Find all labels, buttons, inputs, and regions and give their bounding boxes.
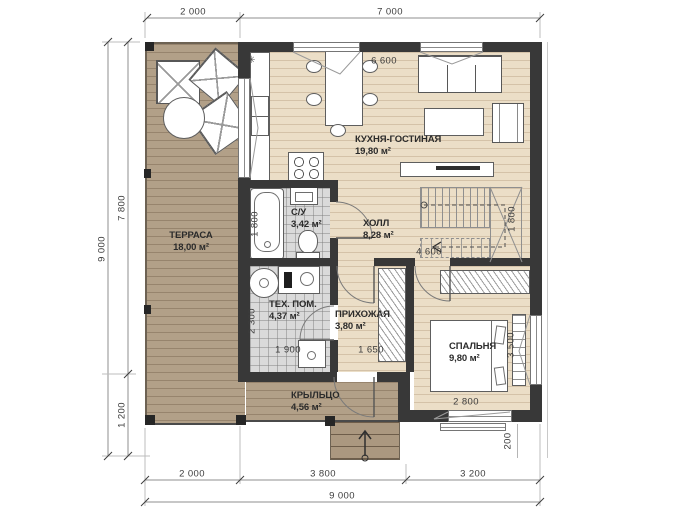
dim-kitchen-width: 6 600 <box>371 56 397 67</box>
room-name: ПРИХОЖАЯ <box>335 309 390 321</box>
room-name: КУХНЯ-ГОСТИНАЯ <box>355 134 441 146</box>
tech-equipment-dial <box>307 351 316 360</box>
dim-tech-width: 1 900 <box>275 345 301 356</box>
wall-hall-bottom-c <box>450 258 542 266</box>
floor-plan: ✳ <box>0 0 693 520</box>
tech-sink <box>300 272 314 286</box>
wall-top <box>238 42 542 52</box>
dim-hallway-width: 1 650 <box>358 345 384 356</box>
room-label-bedroom: СПАЛЬНЯ 9,80 м² <box>449 341 496 365</box>
dim-top-terrace: 2 000 <box>180 7 206 18</box>
stove <box>288 152 324 182</box>
dining-chair <box>362 93 378 106</box>
dining-chair <box>306 93 322 106</box>
room-area: 3,80 м² <box>335 321 390 333</box>
wall-kitchen-bath <box>238 180 338 188</box>
window-terrace <box>238 78 250 178</box>
window-living <box>420 42 483 52</box>
window-kitchen <box>293 42 360 52</box>
room-area: 19,80 м² <box>355 146 441 158</box>
room-label-porch: КРЫЛЬЦО 4,56 м² <box>291 390 340 414</box>
dim-bottom-center: 3 800 <box>310 469 336 480</box>
dim-bedroom-depth: 3 500 <box>506 332 517 358</box>
room-label-hallway: ПРИХОЖАЯ 3,80 м² <box>335 309 390 333</box>
wall-left-lower <box>238 178 250 382</box>
dim-stairs-width: 1 800 <box>507 206 518 232</box>
room-label-bathroom: С/У 3,42 м² <box>291 207 322 231</box>
wall-bath-hall-upper <box>330 180 338 202</box>
boiler <box>249 268 279 298</box>
washer-drum <box>284 272 292 288</box>
bedroom-wardrobe <box>440 270 530 294</box>
room-name: КРЫЛЬЦО <box>291 390 340 402</box>
wall-tech-hall-lower <box>330 340 338 372</box>
coffee-table <box>424 108 484 136</box>
wall-bath-tech <box>238 258 338 266</box>
terrace-post <box>145 42 154 51</box>
window-bedroom-bottom <box>448 410 512 422</box>
toilet-bowl <box>298 230 318 254</box>
room-label-tech-room: ТЕХ. ПОМ. 4,37 м² <box>269 299 317 323</box>
dim-tech-depth: 2 300 <box>247 308 258 334</box>
dim-hall-width: 4 600 <box>416 247 442 258</box>
sofa <box>418 55 502 93</box>
room-label-kitchen-living: КУХНЯ-ГОСТИНАЯ 19,80 м² <box>355 134 441 158</box>
wall-bottom-left-a <box>238 372 337 382</box>
room-area: 9,80 м² <box>449 353 496 365</box>
dim-bottom-total: 9 000 <box>329 491 355 502</box>
room-area: 4,56 м² <box>291 402 340 414</box>
room-area: 3,42 м² <box>291 219 322 231</box>
porch-post <box>325 416 335 426</box>
pillow <box>494 366 506 385</box>
dim-bedroom-width: 2 800 <box>453 397 479 408</box>
fridge <box>251 96 269 136</box>
room-label-terrace: ТЕРРАСА 18,00 м² <box>153 230 229 254</box>
terrace-post <box>145 415 155 425</box>
room-name: ХОЛЛ <box>363 218 394 230</box>
room-name: С/У <box>291 207 322 219</box>
wall-hall-bottom-a <box>330 258 337 266</box>
wall-hall-bottom-b <box>374 258 415 266</box>
dim-bath-tub: 1 800 <box>250 211 261 237</box>
sink-bowl <box>295 192 313 202</box>
tv <box>436 166 480 170</box>
stairs-upper-flight <box>420 187 490 228</box>
roof-offset-line-right <box>547 42 548 458</box>
armchair <box>492 103 524 143</box>
wall-right-upper <box>530 42 542 315</box>
room-area: 4,37 м² <box>269 311 317 323</box>
room-name: ТЕРРАСА <box>153 230 229 242</box>
dining-chair <box>306 60 322 73</box>
window-radiator <box>440 423 506 431</box>
dim-top-house: 7 000 <box>377 7 403 18</box>
offset-extension-line <box>517 424 518 458</box>
terrace-table <box>163 97 205 139</box>
wall-left-upper <box>238 42 250 78</box>
terrace-post <box>236 415 246 425</box>
dim-bottom-terrace: 2 000 <box>179 469 205 480</box>
porch-steps <box>330 422 400 460</box>
tech-equipment-box <box>298 340 326 368</box>
dim-left-porch: 1 200 <box>117 402 128 428</box>
bathtub-drain <box>264 241 271 248</box>
dim-left-total: 9 000 <box>97 236 108 262</box>
room-name: СПАЛЬНЯ <box>449 341 496 353</box>
room-label-hall: ХОЛЛ 8,28 м² <box>363 218 394 242</box>
dim-bottom-right: 3 200 <box>460 469 486 480</box>
wall-hallway-bedroom <box>406 266 414 372</box>
wall-tech-hall-upper <box>330 266 338 305</box>
dim-left-house: 7 800 <box>117 195 128 221</box>
room-area: 18,00 м² <box>153 242 229 254</box>
room-area: 8,28 м² <box>363 230 394 242</box>
room-name: ТЕХ. ПОМ. <box>269 299 317 311</box>
bathroom-sink <box>290 187 318 205</box>
dim-wall-offset: 200 <box>503 432 514 449</box>
dining-table <box>325 48 363 126</box>
window-bedroom-right <box>530 315 542 385</box>
boiler-inner <box>259 278 269 288</box>
washer-counter <box>278 266 320 294</box>
dining-chair <box>330 124 346 137</box>
terrace-post <box>144 169 151 178</box>
terrace-post <box>144 305 151 314</box>
